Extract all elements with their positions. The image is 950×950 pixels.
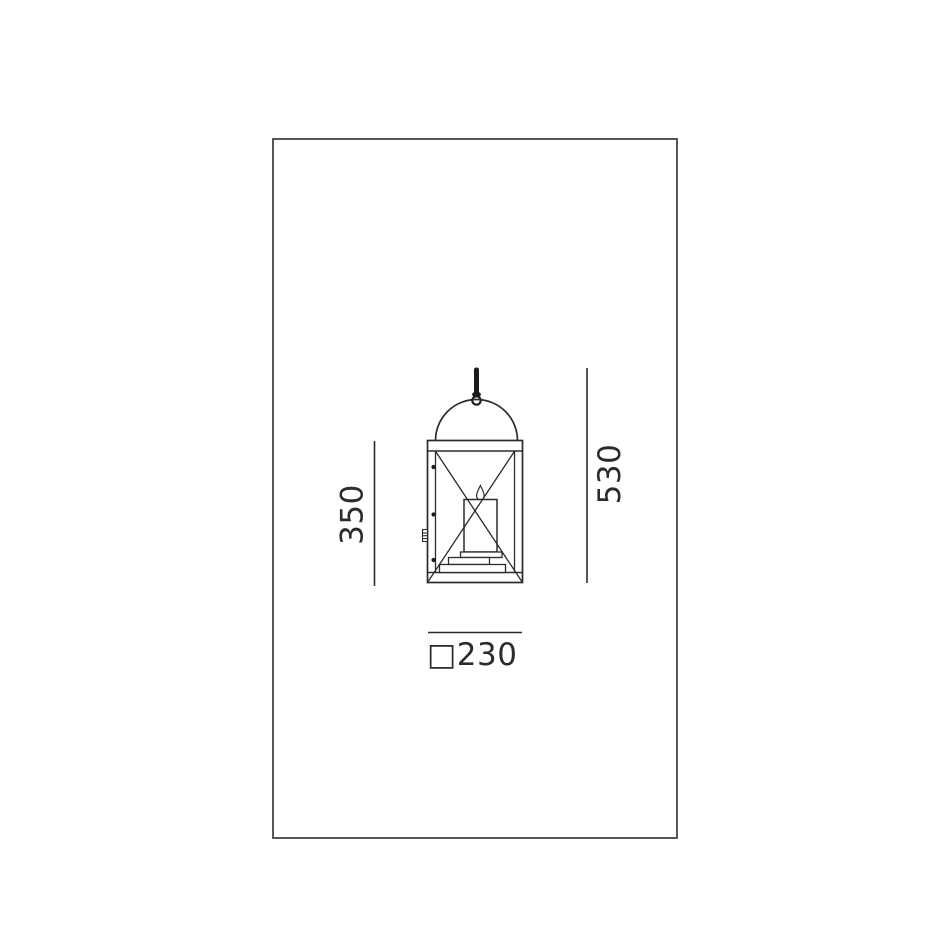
dimension-label-width: □230 (427, 637, 517, 673)
dimension-label-overall-height: 530 (592, 444, 628, 505)
rivet-dot-icon (431, 465, 435, 469)
spec-sheet: 350 530 □230 (0, 0, 950, 950)
hanging-stem (474, 368, 479, 395)
candle-tray (461, 552, 503, 558)
candle-body (464, 500, 497, 553)
rivet-dot-icon (431, 512, 435, 516)
candle-base (440, 565, 506, 573)
rivet-dot-icon (431, 558, 435, 562)
hanging-ring (472, 396, 480, 404)
lantern-illustration (423, 368, 523, 583)
candle-step (449, 558, 490, 565)
dimension-label-body-height: 350 (335, 484, 371, 545)
technical-drawing: 350 530 □230 (0, 0, 950, 950)
